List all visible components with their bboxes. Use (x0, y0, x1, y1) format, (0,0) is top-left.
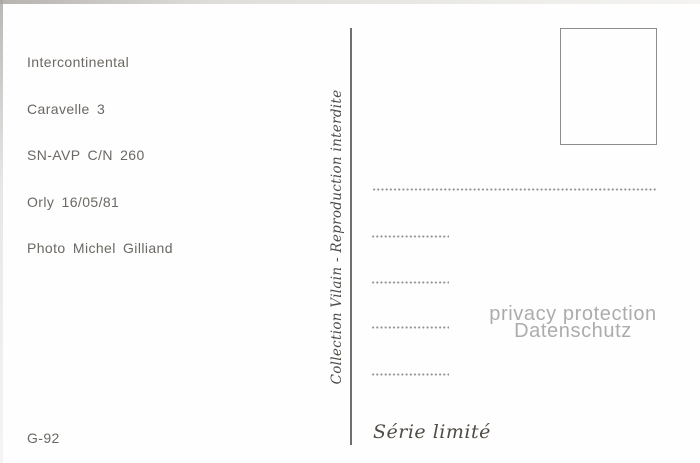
center-divider-line (350, 28, 352, 445)
privacy-watermark: privacy protection Datenschutz (489, 306, 657, 339)
address-dotted-line (371, 326, 449, 329)
info-line-location-date: Orly 16/05/81 (27, 195, 173, 211)
info-line-title: Intercontinental (27, 55, 173, 71)
catalog-number: G-92 (27, 430, 60, 446)
address-dotted-line (371, 235, 449, 238)
scan-edge-left (0, 0, 3, 463)
collection-credit-text: Collection Vilain - Reproduction interdi… (329, 90, 345, 385)
info-line-aircraft: Caravelle 3 (27, 102, 173, 118)
info-line-registration: SN-AVP C/N 260 (27, 148, 173, 164)
postcard-back: Intercontinental Caravelle 3 SN-AVP C/N … (0, 0, 700, 463)
info-line-photographer: Photo Michel Gilliand (27, 241, 173, 257)
address-dotted-line (371, 373, 449, 376)
series-label: Série limité (373, 421, 491, 443)
stamp-box (560, 28, 657, 145)
address-dotted-line (371, 281, 449, 284)
photo-info-block: Intercontinental Caravelle 3 SN-AVP C/N … (27, 24, 173, 288)
address-dotted-line (372, 188, 656, 191)
scan-edge-top (0, 0, 700, 4)
privacy-watermark-line2: Datenschutz (489, 323, 657, 340)
